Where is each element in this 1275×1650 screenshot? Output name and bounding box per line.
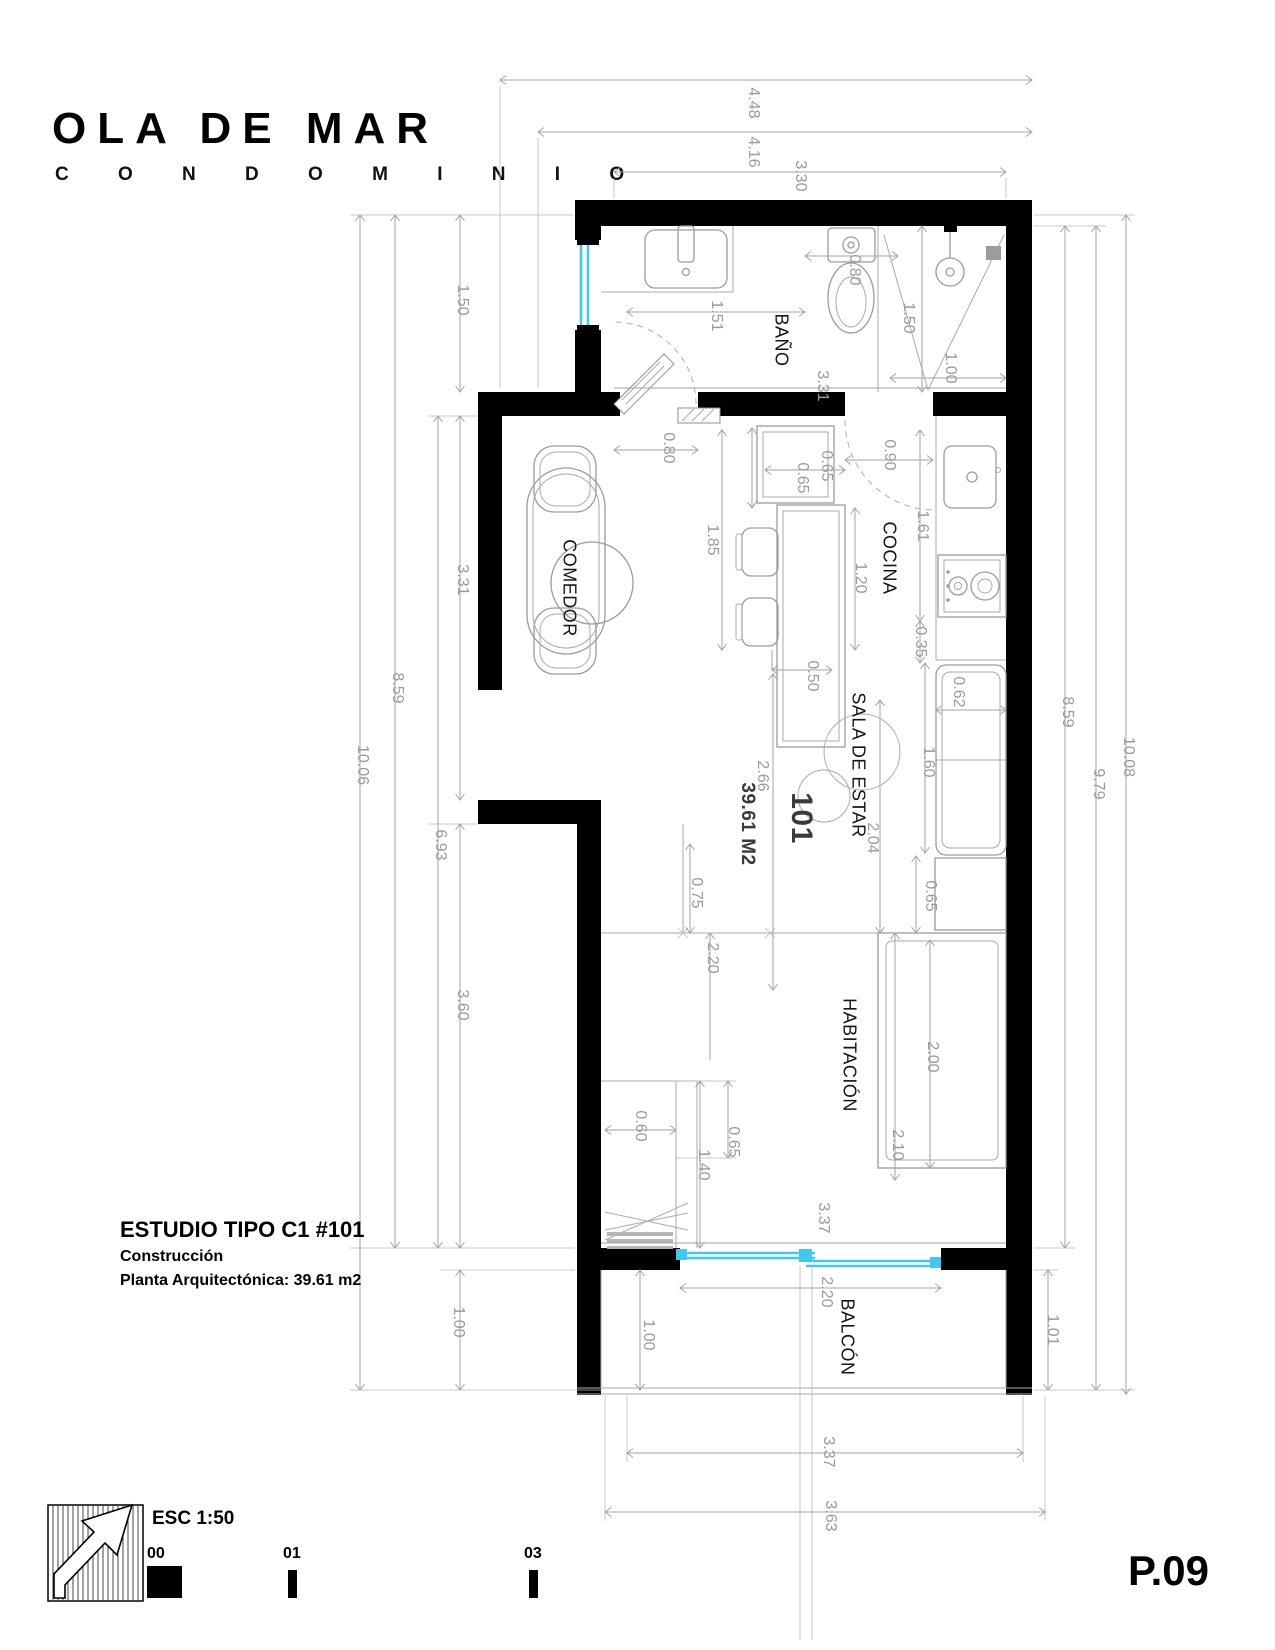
label-unit-area: 39.61 M2 (737, 782, 758, 865)
north-arrow-icon (48, 1505, 143, 1601)
shower-head-icon (936, 258, 964, 286)
dim-bath-331: 3.31 (814, 370, 831, 401)
refrigerator (936, 665, 1006, 855)
label-balcony: BALCÓN (837, 1298, 858, 1375)
bathroom-door (614, 322, 720, 423)
dim-left-100: 1.00 (450, 1306, 467, 1337)
unit-title: ESTUDIO TIPO C1 #101 (120, 1217, 365, 1242)
dim-right-859: 8.59 (1059, 696, 1076, 727)
dim-closet-depth: 0.65 (725, 1126, 742, 1157)
dim-bedroom-075: 0.75 (688, 877, 705, 908)
dim-bath-080: 0.80 (846, 254, 863, 285)
dim-left-331: 3.31 (454, 564, 471, 595)
dim-left-150: 1.50 (454, 284, 471, 315)
dim-top-416: 4.16 (745, 136, 762, 167)
floor-plan-sheet: OLA DE MAR C O N D O M I N I O (0, 0, 1275, 1650)
dim-top-330: 3.30 (792, 160, 809, 191)
wall-balcony-divider-left (577, 1248, 680, 1270)
dim-island-185: 1.85 (704, 524, 721, 555)
dim-left-1006: 10.06 (354, 745, 371, 785)
dim-bottom-outer: 3.63 (822, 1500, 839, 1531)
dim-cabinet-depth: 0.65 (794, 462, 811, 493)
wall-dining-left (478, 392, 502, 690)
bathroom-window (581, 245, 588, 325)
dim-counter-161: 1.61 (914, 510, 931, 541)
logo-subtitle: C O N D O M I N I O (55, 164, 646, 185)
plan-area-label: Planta Arquitectónica: 39.61 m2 (120, 1272, 361, 1289)
dim-door-080: 0.80 (660, 432, 677, 463)
dim-fridge-height: 1.60 (920, 746, 937, 777)
scale-label: ESC 1:50 (152, 1508, 234, 1529)
room-labels: BAÑO COCINA COMEDOR SALA DE ESTAR 101 39… (559, 313, 899, 1375)
wall-left-lower (577, 800, 601, 1248)
balcony-sliding-door (676, 1249, 941, 1268)
scale-block-01 (288, 1570, 297, 1598)
scale-bar: ESC 1:50 00 01 03 (147, 1508, 542, 1598)
wall-balcony-left (577, 1270, 601, 1395)
logo: OLA DE MAR C O N D O M I N I O (52, 104, 646, 185)
dim-right-101: 1.01 (1044, 1314, 1061, 1345)
dim-bath-151: 1.51 (708, 300, 725, 331)
dim-bath-150: 1.50 (900, 302, 917, 333)
wall-bath-bottom-c (933, 392, 1006, 416)
floor-plan-drawing: OLA DE MAR C O N D O M I N I O (0, 0, 1275, 1650)
page-number: P.09 (1128, 1547, 1209, 1594)
logo-title: OLA DE MAR (52, 104, 439, 153)
label-living: SALA DE ESTAR (848, 692, 868, 837)
island-stools (736, 528, 778, 646)
wall-bath-left-upper (575, 200, 601, 240)
scale-block-03 (529, 1570, 538, 1598)
dim-left-859: 8.59 (389, 672, 406, 703)
kitchen-sink (944, 446, 1001, 508)
wall-right (1006, 200, 1032, 1248)
dim-bed-200: 2.00 (924, 1041, 941, 1072)
label-unit-number: 101 (785, 792, 818, 844)
dim-fridge-width: 0.62 (950, 676, 967, 707)
window-cap-top (577, 236, 599, 245)
dim-desk-065: 0.65 (922, 880, 939, 911)
dim-balcony-width: 3.37 (815, 1202, 832, 1233)
label-kitchen: COCINA (879, 521, 899, 594)
dim-gap-035: 0.35 (912, 626, 929, 657)
kitchen-island (777, 505, 845, 747)
dim-bottom-inner: 3.37 (820, 1436, 837, 1467)
window-cap-bottom (577, 325, 599, 334)
dim-left-693: 6.93 (432, 829, 449, 860)
dim-top-448: 4.48 (745, 87, 762, 118)
bathroom-sink (601, 226, 733, 292)
title-block: ESTUDIO TIPO C1 #101 Construcción Planta… (120, 1217, 365, 1289)
shower-drain (986, 246, 1001, 260)
dim-left-360: 3.60 (454, 989, 471, 1020)
dim-bedroom-220: 2.20 (704, 942, 721, 973)
desk (935, 858, 1006, 930)
dim-balcony-door: 2.20 (818, 1276, 835, 1307)
wall-balcony-right (1006, 1248, 1032, 1395)
construction-label: Construcción (120, 1248, 223, 1265)
scale-mark-03: 03 (524, 1545, 542, 1562)
label-bedroom: HABITACIÓN (839, 998, 860, 1112)
dim-closet-width: 0.60 (632, 1110, 649, 1141)
dim-closet-height: 1.40 (695, 1149, 712, 1180)
dim-bedroom-210: 2.10 (889, 1129, 906, 1160)
dim-cabinet-width: 0.65 (818, 450, 835, 481)
dim-bath-100: 1.00 (942, 352, 959, 383)
wall-bath-bottom-a (575, 392, 620, 416)
stove-icon (938, 555, 1006, 617)
dim-balcony-depth: 1.00 (640, 1319, 657, 1350)
closet (601, 1081, 697, 1249)
dim-stool-050: 0.50 (804, 660, 821, 691)
scale-mark-01: 01 (283, 1545, 301, 1562)
door-threshold (678, 408, 720, 423)
dim-right-979: 9.79 (1090, 768, 1107, 799)
scale-block-00 (147, 1566, 182, 1598)
dim-kitchen-entry: 0.90 (881, 439, 898, 470)
wall-top (575, 200, 1032, 226)
label-bathroom: BAÑO (771, 313, 792, 366)
label-dining: COMEDOR (559, 539, 579, 637)
dim-aisle-120: 1.20 (852, 562, 869, 593)
dim-right-1008: 10.08 (1120, 737, 1137, 777)
scale-mark-00: 00 (147, 1545, 165, 1562)
shower (878, 221, 1004, 392)
